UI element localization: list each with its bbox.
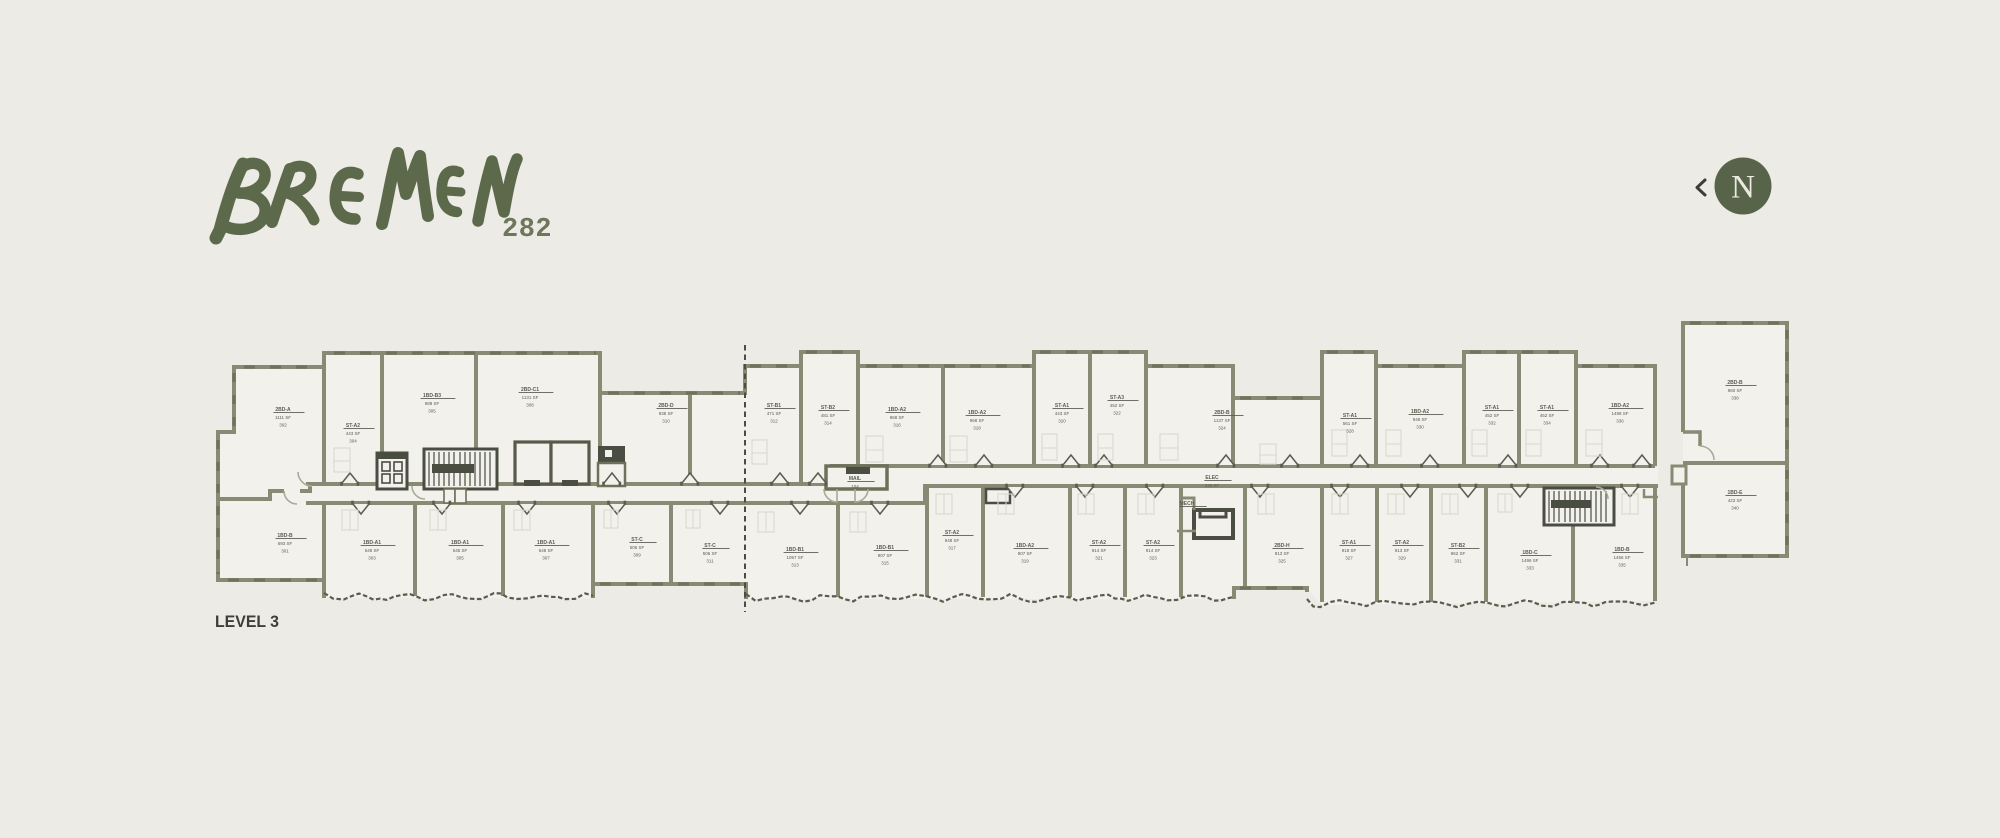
- svg-text:308: 308: [526, 403, 534, 408]
- svg-text:ST-A2: ST-A2: [1092, 540, 1106, 546]
- svg-text:913 SF: 913 SF: [1395, 548, 1410, 553]
- svg-text:693 SF: 693 SF: [278, 541, 293, 546]
- svg-text:452 SF: 452 SF: [1485, 413, 1500, 418]
- svg-text:907 SF: 907 SF: [1018, 551, 1033, 556]
- svg-text:907 SF: 907 SF: [878, 553, 893, 558]
- svg-text:ELEC: ELEC: [1205, 475, 1219, 481]
- svg-text:313: 313: [791, 563, 799, 568]
- svg-text:334: 334: [1543, 421, 1551, 426]
- svg-text:452 SF: 452 SF: [1540, 413, 1555, 418]
- svg-text:ST-A2: ST-A2: [346, 423, 360, 429]
- svg-text:1BD-A1: 1BD-A1: [363, 540, 381, 546]
- svg-text:1131 SF: 1131 SF: [522, 395, 539, 400]
- svg-text:914 SF: 914 SF: [1146, 548, 1161, 553]
- svg-text:1456 SF: 1456 SF: [1613, 555, 1630, 560]
- svg-text:ST-A1: ST-A1: [1343, 413, 1357, 419]
- svg-text:962 SF: 962 SF: [1451, 551, 1466, 556]
- svg-text:1496 SF: 1496 SF: [1521, 558, 1538, 563]
- svg-text:648 SF: 648 SF: [365, 548, 380, 553]
- svg-text:ST-A2: ST-A2: [945, 530, 959, 536]
- svg-text:282: 282: [502, 215, 552, 245]
- svg-text:506 SF: 506 SF: [630, 545, 645, 550]
- svg-text:316: 316: [893, 423, 901, 428]
- svg-text:968 SF: 968 SF: [970, 418, 985, 423]
- svg-text:317: 317: [948, 546, 956, 551]
- svg-text:315: 315: [881, 561, 889, 566]
- svg-text:1BD-B1: 1BD-B1: [876, 545, 894, 551]
- svg-text:443 SF: 443 SF: [346, 431, 361, 436]
- svg-text:1BD-B: 1BD-B: [1614, 547, 1630, 553]
- svg-text:332: 332: [1488, 421, 1496, 426]
- svg-text:327: 327: [1345, 556, 1353, 561]
- svg-text:988 SF: 988 SF: [425, 401, 440, 406]
- svg-text:1BD-A1: 1BD-A1: [451, 540, 469, 546]
- svg-text:1BD-A2: 1BD-A2: [888, 407, 906, 413]
- svg-text:914 SF: 914 SF: [1092, 548, 1107, 553]
- svg-text:333: 333: [1526, 566, 1534, 571]
- svg-text:1498 SF: 1498 SF: [1611, 411, 1628, 416]
- svg-text:1BD-A2: 1BD-A2: [1611, 403, 1629, 409]
- svg-text:324: 324: [1218, 426, 1226, 431]
- svg-text:ST-A1: ST-A1: [1540, 405, 1554, 411]
- svg-text:1BD-B: 1BD-B: [277, 533, 293, 539]
- svg-text:230 SF: 230 SF: [1205, 483, 1220, 488]
- svg-text:938 SF: 938 SF: [659, 411, 674, 416]
- svg-text:2BD-C1: 2BD-C1: [521, 387, 539, 393]
- svg-text:336: 336: [1616, 419, 1624, 424]
- svg-text:ST-A3: ST-A3: [1110, 395, 1124, 401]
- svg-text:1BD-C: 1BD-C: [1522, 550, 1538, 556]
- svg-text:2BD-D: 2BD-D: [658, 403, 674, 409]
- svg-text:ST-C: ST-C: [631, 537, 643, 543]
- svg-text:MECH: MECH: [1180, 501, 1195, 507]
- svg-text:310: 310: [662, 419, 670, 424]
- svg-text:LEVEL 3: LEVEL 3: [215, 613, 279, 631]
- svg-text:506 SF: 506 SF: [703, 551, 718, 556]
- svg-text:321: 321: [1095, 556, 1103, 561]
- svg-text:ST-A2: ST-A2: [1146, 540, 1160, 546]
- svg-text:1BD-A2: 1BD-A2: [968, 410, 986, 416]
- svg-text:331: 331: [1454, 559, 1462, 564]
- svg-text:423 SF: 423 SF: [1728, 498, 1743, 503]
- svg-text:481 SF: 481 SF: [821, 413, 836, 418]
- svg-text:648 SF: 648 SF: [539, 548, 554, 553]
- svg-text:1111 SF: 1111 SF: [275, 415, 291, 420]
- svg-text:1BD-A2: 1BD-A2: [1411, 409, 1429, 415]
- svg-text:960 SF: 960 SF: [1728, 388, 1743, 393]
- svg-text:330: 330: [1416, 425, 1424, 430]
- svg-text:N: N: [1731, 170, 1755, 206]
- svg-text:301: 301: [281, 549, 289, 554]
- svg-text:948 SF: 948 SF: [1413, 417, 1428, 422]
- svg-text:2BD-B: 2BD-B: [1214, 410, 1230, 416]
- svg-text:338: 338: [1731, 396, 1739, 401]
- svg-text:2BD-H: 2BD-H: [1274, 543, 1290, 549]
- svg-text:ST-C: ST-C: [704, 543, 716, 549]
- svg-text:918 SF: 918 SF: [1342, 548, 1357, 553]
- svg-text:ST-A2: ST-A2: [1395, 540, 1409, 546]
- svg-text:340: 340: [1731, 506, 1739, 511]
- svg-text:1BD-B3: 1BD-B3: [423, 393, 441, 399]
- svg-text:1137 SF: 1137 SF: [1214, 418, 1231, 423]
- svg-text:452 SF: 452 SF: [1110, 403, 1125, 408]
- svg-text:1BD-A1: 1BD-A1: [537, 540, 555, 546]
- svg-text:2BD-B: 2BD-B: [1727, 380, 1743, 386]
- svg-text:302: 302: [279, 423, 287, 428]
- svg-text:ST-A1: ST-A1: [1485, 405, 1499, 411]
- svg-text:948 SF: 948 SF: [945, 538, 960, 543]
- svg-text:645 SF: 645 SF: [453, 548, 468, 553]
- svg-text:328: 328: [1346, 429, 1354, 434]
- svg-text:104: 104: [851, 484, 859, 489]
- svg-text:319: 319: [1021, 559, 1029, 564]
- svg-text:1BD-E: 1BD-E: [1727, 490, 1743, 496]
- svg-text:323: 323: [1149, 556, 1157, 561]
- svg-text:968 SF: 968 SF: [890, 415, 905, 420]
- svg-text:311: 311: [706, 559, 714, 564]
- svg-text:314: 314: [824, 421, 832, 426]
- svg-text:MAIL: MAIL: [849, 476, 861, 482]
- svg-text:312: 312: [770, 419, 778, 424]
- svg-text:ST-A1: ST-A1: [1055, 403, 1069, 409]
- svg-text:1057 SF: 1057 SF: [786, 555, 803, 560]
- svg-text:ST-B2: ST-B2: [821, 405, 835, 411]
- svg-text:335: 335: [1618, 563, 1626, 568]
- svg-text:325: 325: [1278, 559, 1286, 564]
- svg-text:303: 303: [368, 556, 376, 561]
- svg-text:ST-A1: ST-A1: [1342, 540, 1356, 546]
- svg-text:309: 309: [633, 553, 641, 558]
- svg-text:913 SF: 913 SF: [1275, 551, 1290, 556]
- svg-text:1BD-A2: 1BD-A2: [1016, 543, 1034, 549]
- svg-text:318: 318: [973, 426, 981, 431]
- svg-text:561 SF: 561 SF: [1343, 421, 1358, 426]
- svg-text:320: 320: [1058, 419, 1066, 424]
- svg-text:471 SF: 471 SF: [767, 411, 782, 416]
- svg-text:305: 305: [456, 556, 464, 561]
- svg-text:ST-B1: ST-B1: [767, 403, 781, 409]
- svg-text:304: 304: [349, 439, 357, 444]
- svg-text:ST-B2: ST-B2: [1451, 543, 1465, 549]
- svg-text:307: 307: [542, 556, 550, 561]
- svg-text:305: 305: [428, 409, 436, 414]
- svg-text:2BD-A: 2BD-A: [275, 407, 291, 413]
- svg-text:329: 329: [1398, 556, 1406, 561]
- svg-text:443 SF: 443 SF: [1055, 411, 1070, 416]
- svg-text:1BD-B1: 1BD-B1: [786, 547, 804, 553]
- svg-text:322: 322: [1113, 411, 1121, 416]
